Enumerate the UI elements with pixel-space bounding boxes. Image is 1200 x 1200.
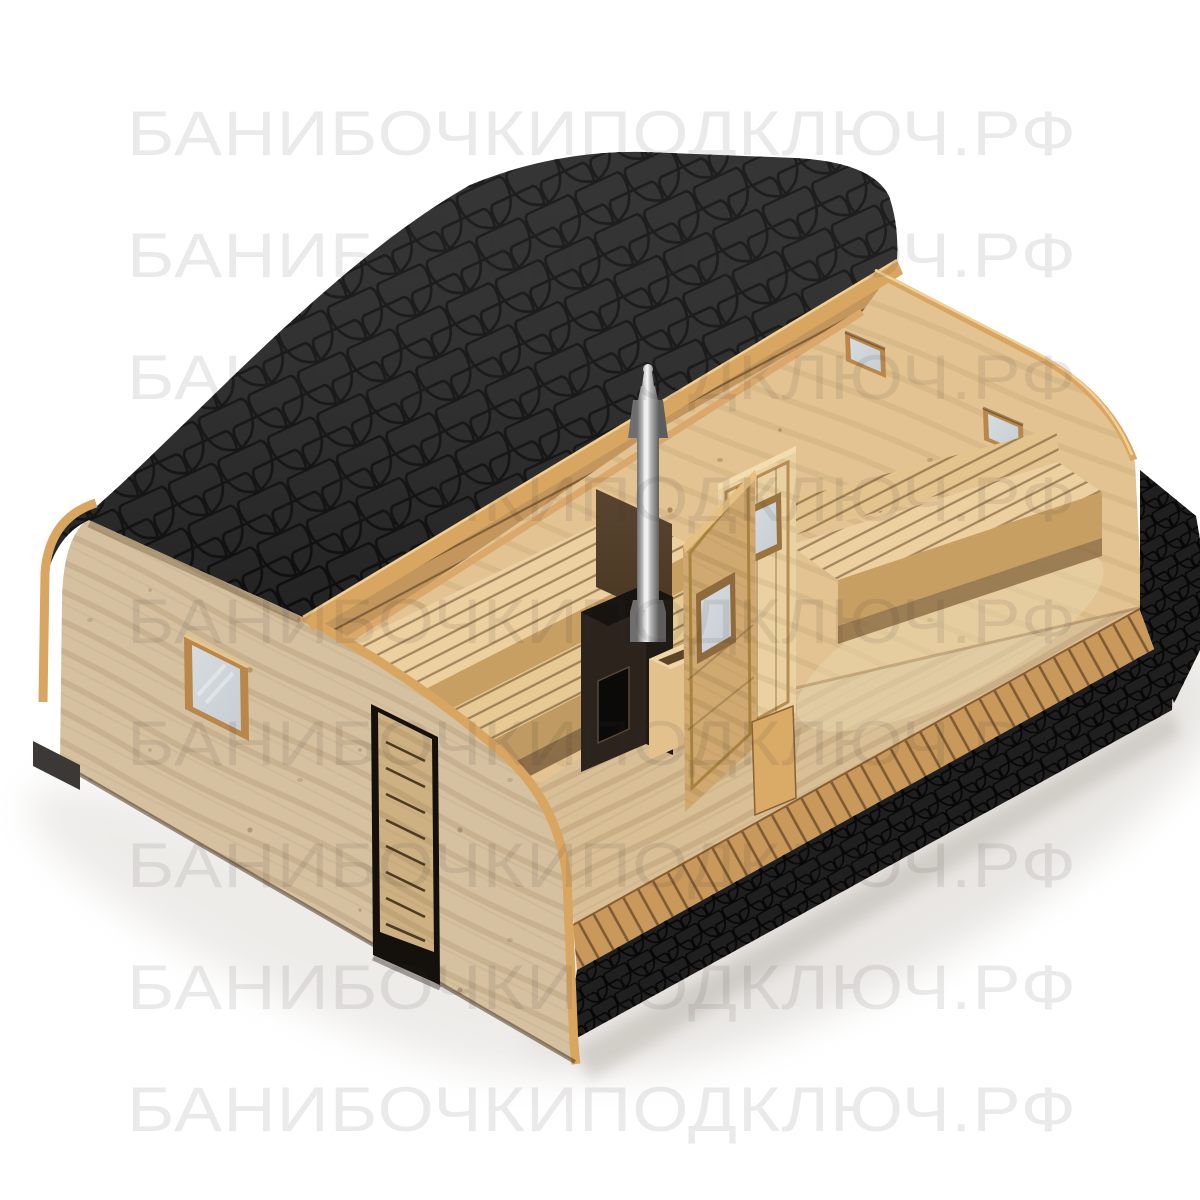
watermark-text: БАНИБОЧКИПОДКЛЮЧ.РФ [127, 587, 1077, 657]
watermark-layer: БАНИБОЧКИПОДКЛЮЧ.РФ БАНИБОЧКИПОДКЛЮЧ.РФ … [127, 99, 1077, 1145]
watermark-text: БАНИБОЧКИПОДКЛЮЧ.РФ [127, 831, 1077, 901]
product-render-scene: БАНИБОЧКИПОДКЛЮЧ.РФ БАНИБОЧКИПОДКЛЮЧ.РФ … [0, 0, 1200, 1200]
watermark-text: БАНИБОЧКИПОДКЛЮЧ.РФ [127, 343, 1077, 413]
watermark-text: БАНИБОЧКИПОДКЛЮЧ.РФ [127, 953, 1077, 1023]
watermark-text: БАНИБОЧКИПОДКЛЮЧ.РФ [127, 221, 1077, 291]
watermark-text: БАНИБОЧКИПОДКЛЮЧ.РФ [127, 1075, 1077, 1145]
watermark-text: БАНИБОЧКИПОДКЛЮЧ.РФ [127, 709, 1077, 779]
watermark-text: БАНИБОЧКИПОДКЛЮЧ.РФ [127, 99, 1077, 169]
sauna-cutaway-render: БАНИБОЧКИПОДКЛЮЧ.РФ БАНИБОЧКИПОДКЛЮЧ.РФ … [0, 0, 1200, 1200]
watermark-text: БАНИБОЧКИПОДКЛЮЧ.РФ [127, 465, 1077, 535]
